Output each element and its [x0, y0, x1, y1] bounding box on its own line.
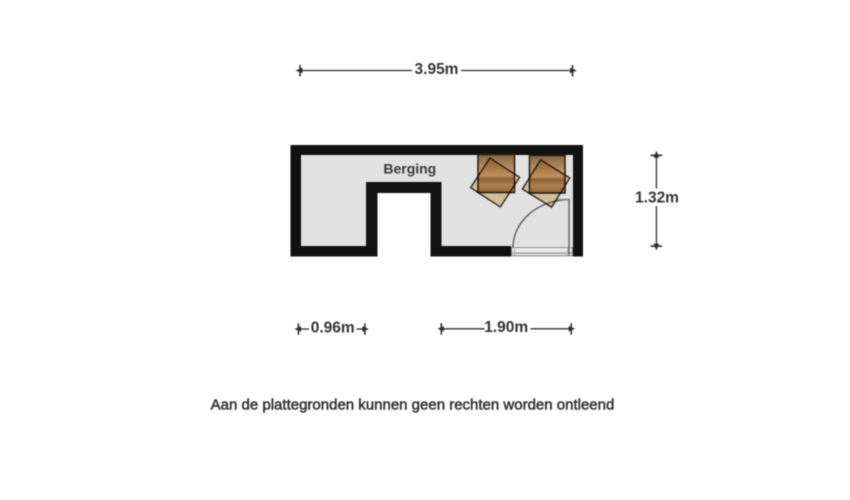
svg-text:0.96m: 0.96m — [311, 319, 355, 336]
svg-text:Berging: Berging — [383, 160, 436, 176]
svg-text:Aan de plattegronden kunnen ge: Aan de plattegronden kunnen geen rechten… — [211, 397, 615, 414]
svg-text:1.32m: 1.32m — [635, 190, 679, 207]
svg-text:3.95m: 3.95m — [415, 61, 459, 78]
svg-text:1.90m: 1.90m — [484, 319, 528, 336]
